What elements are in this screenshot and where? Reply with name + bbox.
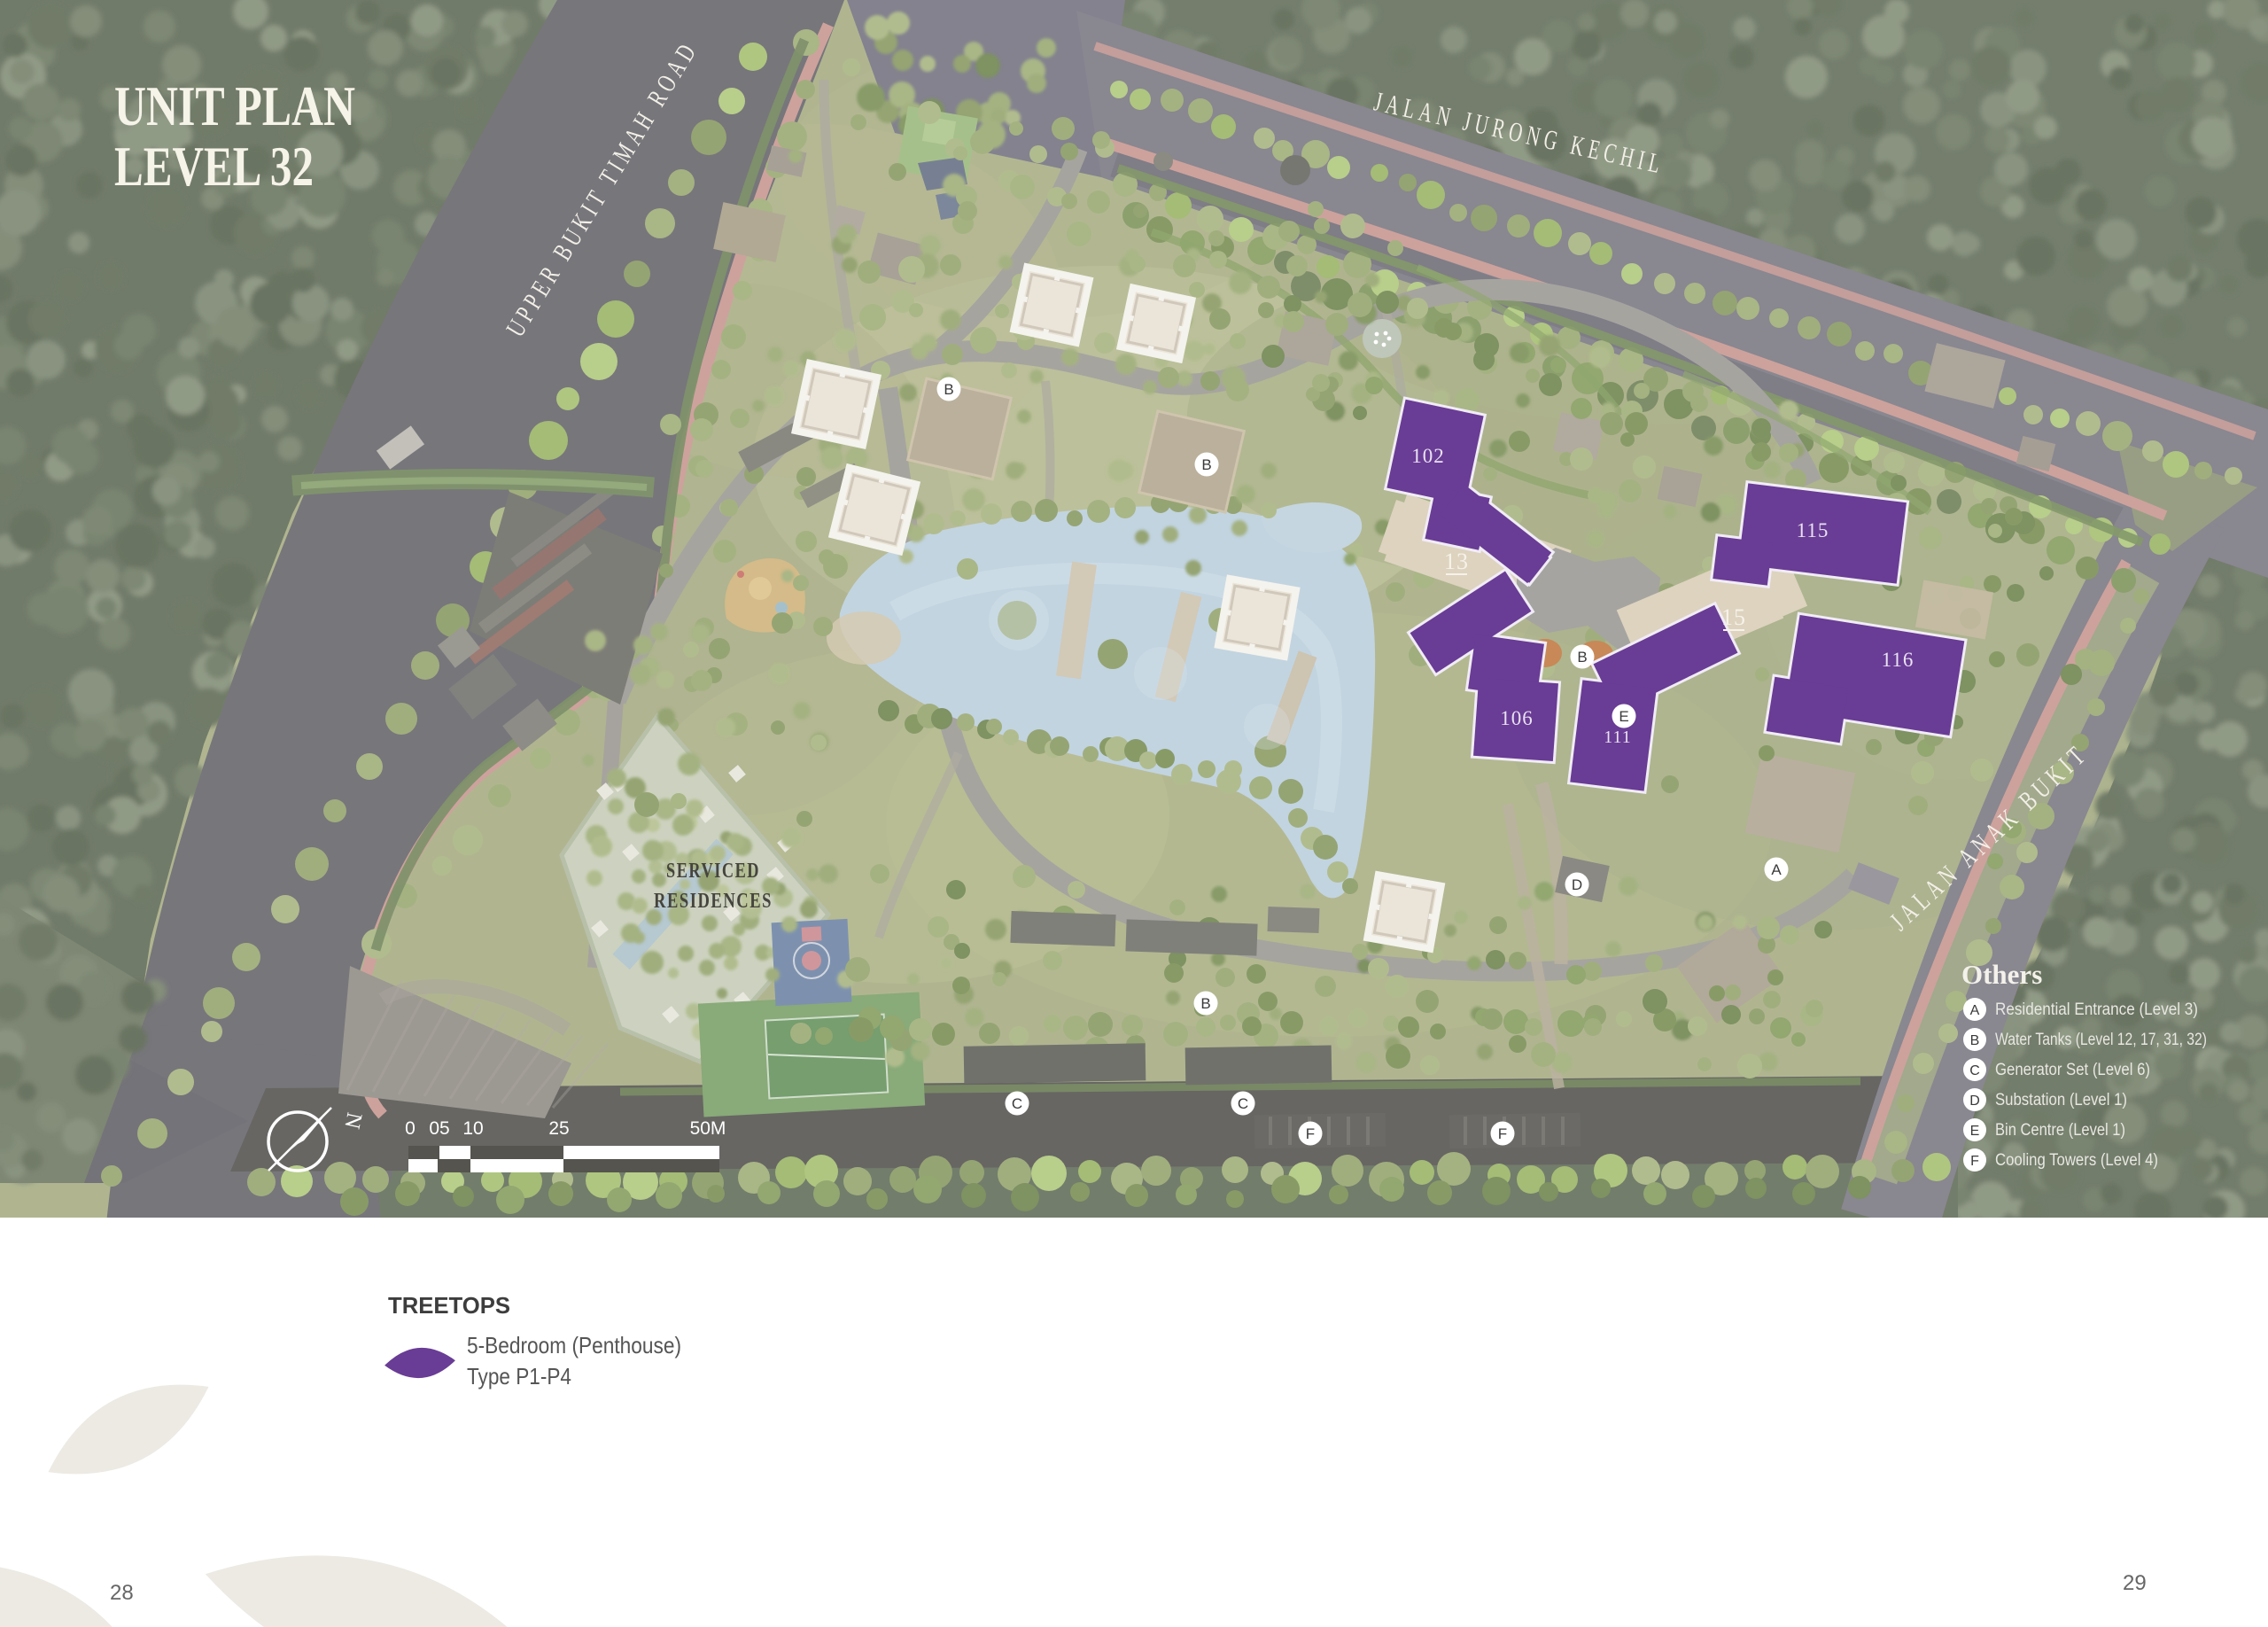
svg-text:15: 15 — [1721, 604, 1746, 630]
svg-text:50M: 50M — [690, 1118, 726, 1139]
svg-text:D: D — [1969, 1094, 1980, 1109]
svg-text:B: B — [1970, 1033, 1980, 1048]
svg-text:Cooling Towers (Level 4): Cooling Towers (Level 4) — [1995, 1151, 2158, 1170]
svg-text:A: A — [1970, 1003, 1980, 1018]
svg-text:F: F — [1498, 1125, 1507, 1142]
svg-text:C: C — [1969, 1063, 1980, 1078]
svg-text:A: A — [1771, 861, 1782, 878]
svg-text:LEVEL 32: LEVEL 32 — [114, 135, 314, 198]
svg-text:B: B — [944, 381, 953, 398]
svg-text:F: F — [1970, 1154, 1979, 1169]
svg-text:B: B — [1201, 456, 1211, 473]
svg-text:Water Tanks (Level 12, 17, 31,: Water Tanks (Level 12, 17, 31, 32) — [1995, 1031, 2207, 1049]
svg-text:C: C — [1238, 1095, 1248, 1112]
svg-text:UNIT PLAN: UNIT PLAN — [114, 74, 355, 137]
svg-text:C: C — [1012, 1095, 1022, 1112]
svg-text:111: 111 — [1604, 728, 1632, 747]
svg-text:Bin Centre (Level 1): Bin Centre (Level 1) — [1995, 1121, 2125, 1140]
svg-text:0: 0 — [405, 1118, 416, 1139]
svg-text:SERVICED: SERVICED — [666, 860, 760, 883]
svg-text:29: 29 — [2123, 1571, 2147, 1595]
svg-text:F: F — [1306, 1125, 1315, 1142]
svg-text:28: 28 — [110, 1581, 134, 1605]
svg-text:13: 13 — [1444, 549, 1469, 574]
svg-text:Others: Others — [1961, 959, 2042, 990]
svg-text:B: B — [1577, 649, 1587, 666]
svg-text:B: B — [1200, 995, 1210, 1012]
svg-text:RESIDENCES: RESIDENCES — [654, 890, 773, 913]
svg-text:115: 115 — [1797, 519, 1829, 541]
svg-text:D: D — [1572, 876, 1582, 893]
svg-text:05: 05 — [429, 1118, 449, 1139]
svg-text:25: 25 — [548, 1118, 569, 1139]
svg-text:TREETOPS: TREETOPS — [388, 1292, 510, 1319]
svg-text:10: 10 — [462, 1118, 483, 1139]
svg-text:E: E — [1970, 1124, 1980, 1139]
svg-text:116: 116 — [1882, 649, 1915, 671]
svg-text:5-Bedroom (Penthouse): 5-Bedroom (Penthouse) — [467, 1332, 681, 1358]
svg-text:E: E — [1619, 708, 1628, 725]
svg-text:Type P1-P4: Type P1-P4 — [467, 1363, 571, 1390]
svg-text:Generator Set (Level 6): Generator Set (Level 6) — [1995, 1061, 2150, 1079]
svg-text:Substation (Level 1): Substation (Level 1) — [1995, 1091, 2127, 1109]
svg-text:106: 106 — [1500, 707, 1534, 729]
svg-text:102: 102 — [1411, 445, 1445, 467]
svg-text:Residential Entrance (Level 3): Residential Entrance (Level 3) — [1995, 1000, 2198, 1019]
